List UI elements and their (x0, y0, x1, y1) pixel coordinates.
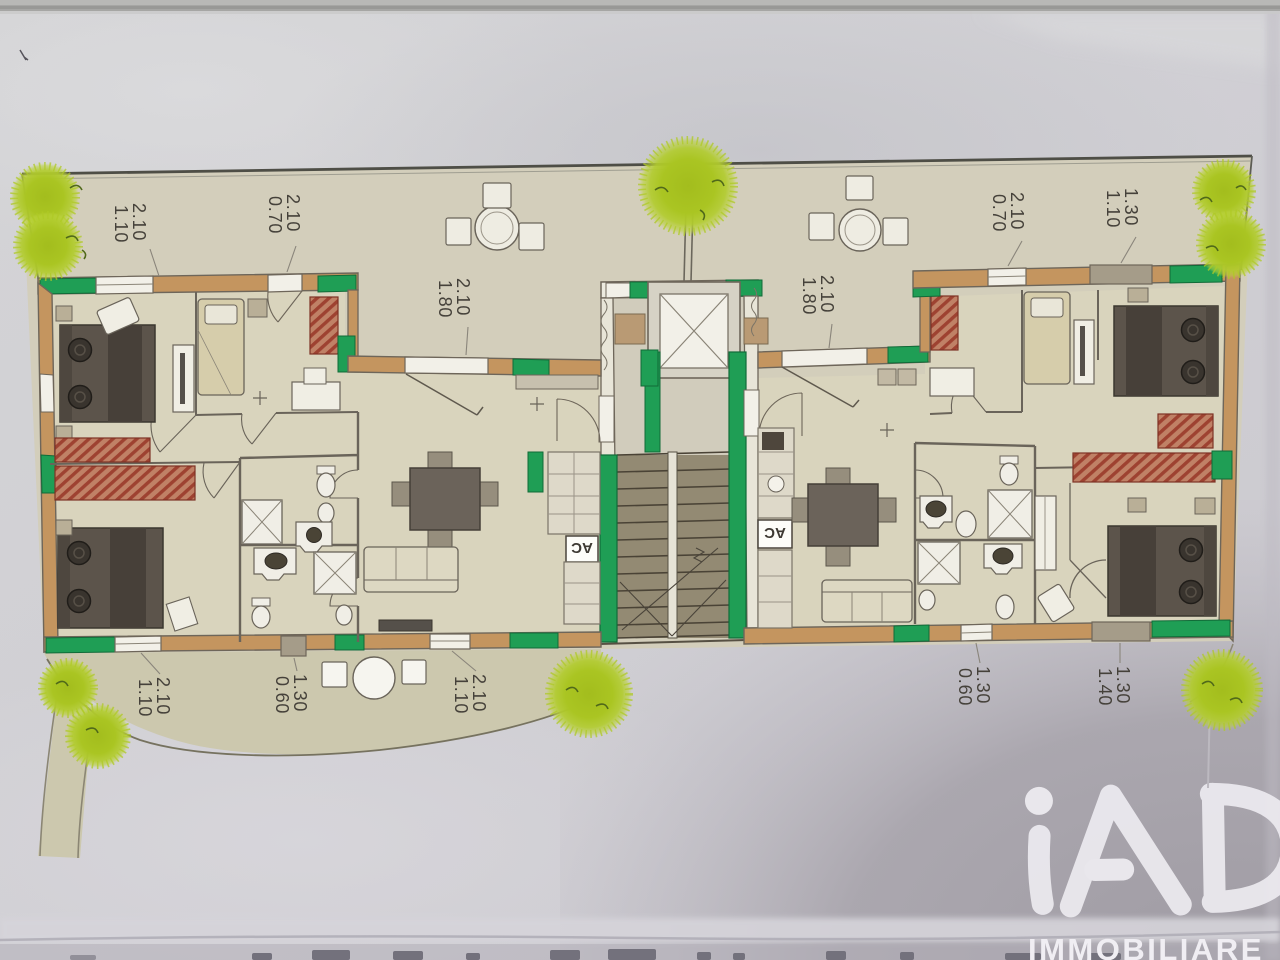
svg-text:AC: AC (764, 524, 786, 541)
svg-text:1.30: 1.30 (973, 666, 993, 704)
svg-text:2.10: 2.10 (453, 278, 473, 316)
svg-text:1.40: 1.40 (1095, 668, 1115, 706)
svg-text:2.10: 2.10 (817, 275, 837, 313)
svg-text:1.10: 1.10 (135, 679, 155, 717)
svg-text:0.70: 0.70 (989, 194, 1009, 232)
svg-text:1.80: 1.80 (435, 280, 455, 318)
svg-text:1.10: 1.10 (111, 205, 131, 243)
svg-text:1.30: 1.30 (1121, 188, 1141, 226)
svg-text:0.60: 0.60 (272, 676, 292, 714)
svg-text:1.30: 1.30 (290, 674, 310, 712)
svg-text:1.10: 1.10 (1103, 190, 1123, 228)
svg-text:2.10: 2.10 (153, 677, 173, 715)
svg-text:0.60: 0.60 (955, 668, 975, 706)
svg-text:1.10: 1.10 (451, 676, 471, 714)
svg-text:2.10: 2.10 (469, 674, 489, 712)
svg-text:2.10: 2.10 (283, 194, 303, 232)
svg-text:AC: AC (571, 539, 593, 556)
svg-text:1.80: 1.80 (799, 277, 819, 315)
svg-text:1.30: 1.30 (1113, 666, 1133, 704)
svg-text:2.10: 2.10 (1007, 192, 1027, 230)
svg-text:0.70: 0.70 (265, 196, 285, 234)
svg-text:IMMOBILIARE: IMMOBILIARE (1028, 932, 1264, 960)
svg-text:2.10: 2.10 (129, 203, 149, 241)
